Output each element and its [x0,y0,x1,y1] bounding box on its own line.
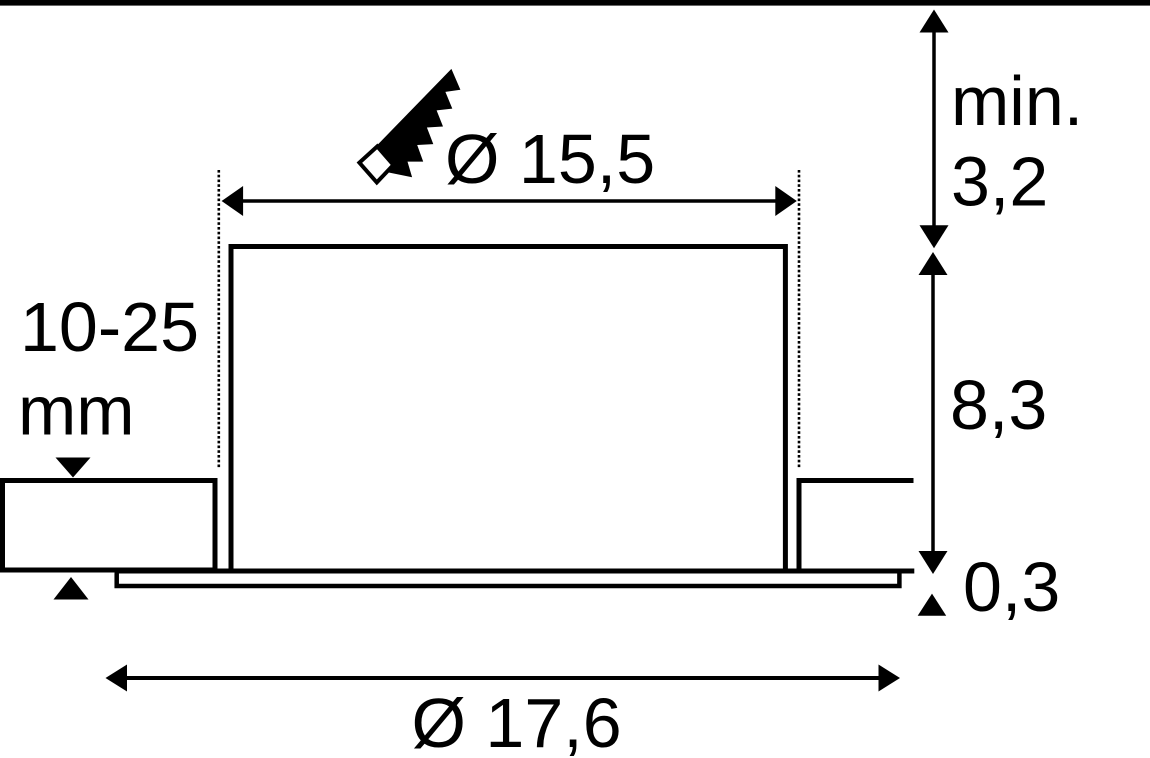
svg-text:mm: mm [18,372,135,450]
svg-text:Ø 15,5: Ø 15,5 [445,120,655,198]
svg-text:10-25: 10-25 [20,288,199,366]
svg-text:8,3: 8,3 [950,366,1047,444]
svg-text:3,2: 3,2 [951,143,1048,221]
svg-text:0,3: 0,3 [963,548,1060,626]
svg-text:min.: min. [951,62,1083,140]
svg-text:Ø 17,6: Ø 17,6 [412,684,622,758]
